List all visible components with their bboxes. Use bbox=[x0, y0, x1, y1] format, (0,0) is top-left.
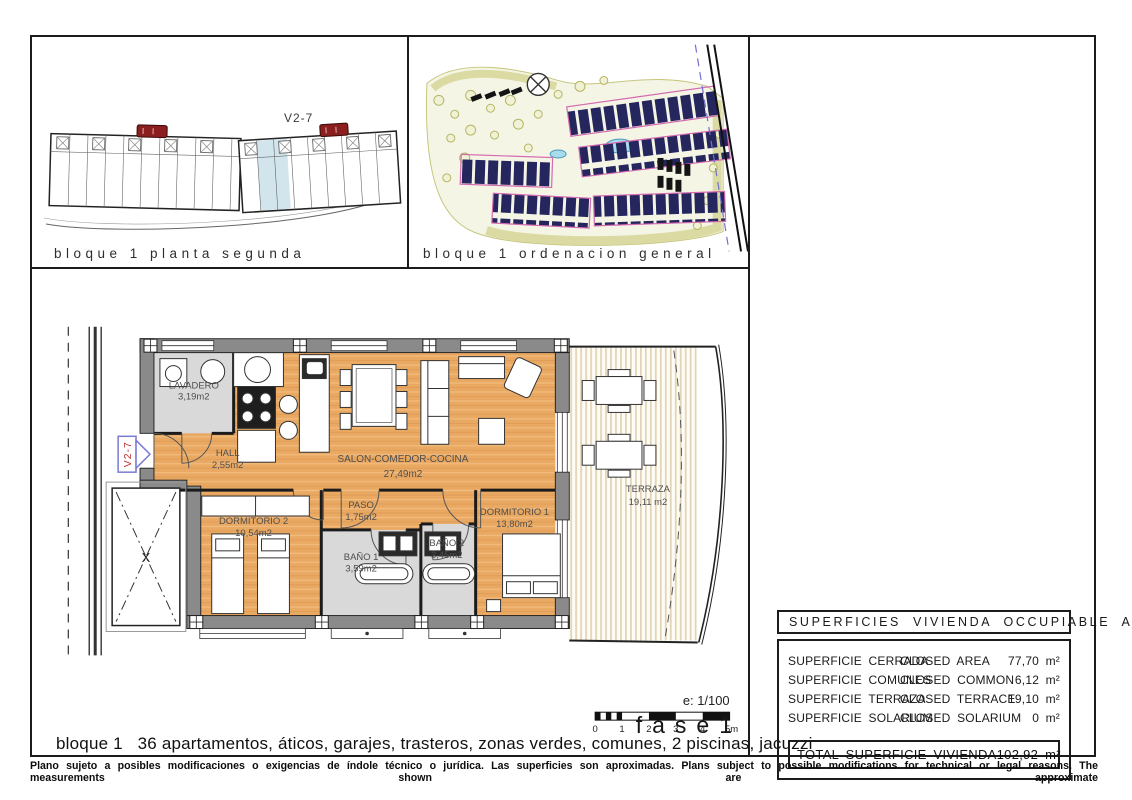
floor-plan-caption: bloque 1 36 apartamentos, áticos, garaje… bbox=[56, 734, 813, 754]
panel-site-plan: bloque 1 ordenacion general bbox=[409, 37, 748, 269]
row-label-en: CLOSED AREA bbox=[900, 652, 1002, 671]
floor-plan-drawing: X V2-7 LAVADERO 3,19m2 HALL 2,55m2 bbox=[32, 269, 748, 757]
area-table-title: SUPERFICIES VIVIENDA OCCUPIABLE AREA bbox=[777, 610, 1071, 634]
row-value: 0 m² bbox=[1002, 709, 1060, 728]
panel-block-plan: V2-7 bloque 1 planta segunda bbox=[32, 37, 409, 269]
floor-plan-panel: X V2-7 LAVADERO 3,19m2 HALL 2,55m2 bbox=[32, 269, 748, 755]
north-symbol bbox=[527, 73, 549, 95]
row-label-es: SUPERFICIE SOLARIUM bbox=[788, 709, 900, 728]
row-label-en: CLOSED SOLARIUM bbox=[900, 709, 1002, 728]
info-column: SUPERFICIES VIVIENDA OCCUPIABLE AREA SUP… bbox=[750, 37, 1094, 755]
svg-text:X: X bbox=[142, 550, 151, 565]
row-value: 19,10 m² bbox=[1002, 690, 1060, 709]
svg-text:2,55m2: 2,55m2 bbox=[212, 460, 244, 471]
svg-text:3,45m2: 3,45m2 bbox=[431, 550, 463, 561]
area-summary-table: SUPERFICIES VIVIENDA OCCUPIABLE AREA SUP… bbox=[777, 610, 1071, 780]
svg-text:10,54m2: 10,54m2 bbox=[235, 528, 272, 539]
site-plan-caption: bloque 1 ordenacion general bbox=[423, 246, 716, 261]
label-salon: SALON-COMEDOR-COCINA bbox=[338, 454, 469, 465]
roof-access-left bbox=[137, 125, 167, 138]
row-value: 6,12 m² bbox=[1002, 671, 1060, 690]
row-value: 77,70 m² bbox=[1002, 652, 1060, 671]
svg-text:3,19m2: 3,19m2 bbox=[178, 391, 210, 402]
block-plan-drawing: V2-7 bbox=[32, 37, 407, 267]
row-label-es: SUPERFICIE TERRAZA bbox=[788, 690, 900, 709]
street-lines bbox=[68, 327, 101, 656]
legal-disclaimer: Plano sujeto a posibles modificaciones o… bbox=[30, 760, 1098, 784]
table-row: SUPERFICIE SOLARIUM CLOSED SOLARIUM 0 m² bbox=[788, 709, 1060, 728]
building-right-wing bbox=[238, 120, 401, 212]
row-label-es: SUPERFICIE COMUNES bbox=[788, 671, 900, 690]
roof-access-right bbox=[320, 123, 349, 137]
block-plan-caption: bloque 1 planta segunda bbox=[54, 246, 305, 261]
svg-text:1,75m2: 1,75m2 bbox=[345, 512, 377, 523]
label-terraza: TERRAZA bbox=[626, 484, 671, 495]
table-row: SUPERFICIE COMUNES CLOSED COMMON 6,12 m² bbox=[788, 671, 1060, 690]
site-plan-drawing bbox=[409, 37, 748, 267]
scale-label: e: 1/100 bbox=[683, 693, 730, 708]
label-bano2: BAÑO 2 bbox=[429, 538, 464, 549]
table-row: SUPERFICIE TERRAZA CLOSED TERRACE 19,10 … bbox=[788, 690, 1060, 709]
unit-tag-block-plan: V2-7 bbox=[284, 111, 313, 125]
svg-text:19,11 m2: 19,11 m2 bbox=[629, 497, 668, 508]
drawing-column: V2-7 bloque 1 planta segunda bbox=[32, 37, 750, 755]
svg-text:13,80m2: 13,80m2 bbox=[496, 519, 533, 530]
row-label-es: SUPERFICIE CERRADA bbox=[788, 652, 900, 671]
row-label-en: CLOSED COMMON bbox=[900, 671, 1002, 690]
unit-entrance-marker: V2-7 bbox=[118, 436, 150, 472]
label-hall: HALL bbox=[216, 448, 240, 459]
unit-tag-floor-plan: V2-7 bbox=[123, 441, 134, 467]
svg-text:3,59m2: 3,59m2 bbox=[345, 564, 377, 575]
area-table-body: SUPERFICIE CERRADA CLOSED AREA 77,70 m² … bbox=[777, 639, 1071, 780]
label-dormitorio1: DORMITORIO 1 bbox=[480, 507, 549, 518]
label-lavadero: LAVADERO bbox=[169, 381, 219, 392]
pool-2 bbox=[550, 150, 566, 158]
stair-shaft: X bbox=[106, 482, 186, 631]
label-bano1: BAÑO 1 bbox=[344, 552, 379, 563]
table-row: SUPERFICIE CERRADA CLOSED AREA 77,70 m² bbox=[788, 652, 1060, 671]
sheet-frame: V2-7 bloque 1 planta segunda bbox=[30, 35, 1096, 757]
label-paso: PASO bbox=[348, 500, 374, 511]
building-left-wing bbox=[49, 123, 241, 211]
svg-text:27,49m2: 27,49m2 bbox=[384, 469, 423, 480]
plan-sheet: V2-7 bloque 1 planta segunda bbox=[0, 0, 1132, 800]
label-dormitorio2: DORMITORIO 2 bbox=[219, 516, 288, 527]
row-label-en: CLOSED TERRACE bbox=[900, 690, 1002, 709]
